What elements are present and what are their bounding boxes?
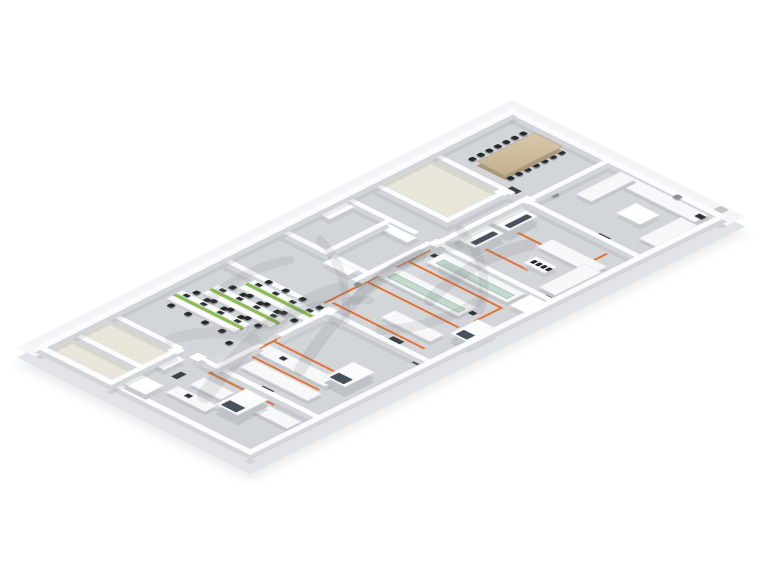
lab-floorplan-render	[0, 0, 760, 570]
